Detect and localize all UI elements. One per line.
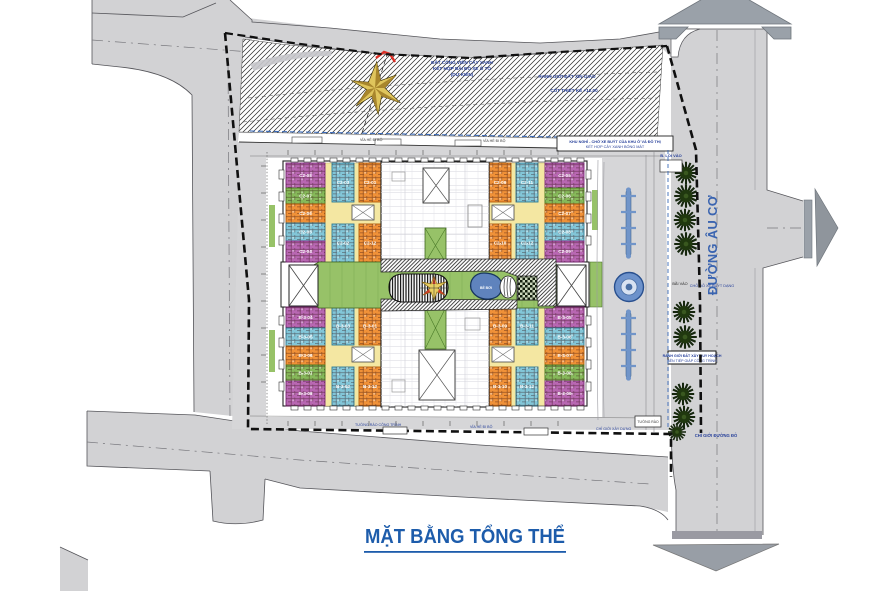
svg-text:B-3-07: B-3-07 [298,371,312,376]
svg-text:B-3-12: B-3-12 [363,384,377,389]
svg-text:VỈA HÈ ĐI BỘ: VỈA HÈ ĐI BỘ [483,138,506,143]
svg-text:C2-08: C2-08 [299,173,312,178]
svg-text:C2-07: C2-07 [558,211,571,216]
svg-text:BỂ BƠI: BỂ BƠI [480,285,492,290]
svg-text:C2-07: C2-07 [299,194,312,199]
svg-text:MẶT BẰNG TỔNG THỂ: MẶT BẰNG TỔNG THỂ [365,524,565,548]
svg-text:B-3-01: B-3-01 [363,324,377,329]
svg-text:C2-12: C2-12 [521,241,534,246]
svg-text:B-3-11: B-3-11 [520,324,534,329]
svg-text:B-3-08: B-3-08 [298,391,312,396]
svg-text:C2-05: C2-05 [558,173,571,178]
svg-text:C2-02: C2-02 [337,241,350,246]
svg-text:CHỈ GIỚI ĐƯỜNG ĐỎ: CHỈ GIỚI ĐƯỜNG ĐỎ [695,433,738,438]
svg-text:B-3-05: B-3-05 [557,315,571,320]
svg-text:KẾT HỢP CÂY XANH BÓNG MÁT: KẾT HỢP CÂY XANH BÓNG MÁT [586,144,645,149]
svg-text:B-3-02: B-3-02 [336,384,350,389]
svg-text:VỈA HÈ ĐI BỘ: VỈA HÈ ĐI BỘ [360,137,383,142]
svg-text:ĐƯỜNG ÂU CƠ: ĐƯỜNG ÂU CƠ [705,195,720,295]
svg-text:B-3-03: B-3-03 [336,324,350,329]
svg-text:B-3-06: B-3-06 [557,335,571,340]
svg-text:KHU NGHỈ - CHỜ XE BUÝT CỦA KHU: KHU NGHỈ - CHỜ XE BUÝT CỦA KHU Ở VÀ ĐÔ T… [569,139,660,144]
svg-text:C2-06: C2-06 [299,211,312,216]
svg-text:CỐT THIẾT KẾ +12.00: CỐT THIẾT KẾ +12.00 [550,87,598,93]
svg-text:B-3-04: B-3-04 [298,315,312,320]
svg-text:KẾT HỢP BÃI ĐỖ XE Ô TÔ: KẾT HỢP BÃI ĐỖ XE Ô TÔ [433,64,491,71]
svg-text:TƯỜNG RÀO CÔNG TRÌNH: TƯỜNG RÀO CÔNG TRÌNH [355,422,402,427]
svg-text:C2-12: C2-12 [364,241,377,246]
svg-text:C2-11: C2-11 [521,180,534,185]
svg-text:B-3-05: B-3-05 [298,335,312,340]
svg-text:CHỈ GIỚI XÂY DỰNG: CHỈ GIỚI XÂY DỰNG [596,426,631,431]
svg-text:RANH GIỚI ĐẤT XIN GIAO: RANH GIỚI ĐẤT XIN GIAO [538,72,596,79]
svg-text:B-3-09: B-3-09 [493,324,507,329]
svg-text:B-3-06: B-3-06 [298,353,312,358]
svg-text:B-3-09: B-3-09 [557,391,571,396]
svg-text:B-3-07: B-3-07 [557,353,571,358]
svg-text:C2-10: C2-10 [494,241,507,246]
svg-text:B. LỐI VÀO: B. LỐI VÀO [660,153,682,158]
svg-text:BÊN TIẾP GIÁP CÔNG TRÌNH: BÊN TIẾP GIÁP CÔNG TRÌNH [667,358,717,363]
svg-text:C2-05: C2-05 [299,230,312,235]
svg-text:C2-06: C2-06 [558,194,571,199]
svg-text:B-3-12: B-3-12 [520,384,534,389]
svg-text:B-3-10: B-3-10 [493,384,507,389]
svg-text:RANH GIỚI ĐẤT XÂY QUY HOẠCH: RANH GIỚI ĐẤT XÂY QUY HOẠCH [663,353,722,358]
svg-text:C2-03: C2-03 [337,180,350,185]
svg-text:BÃI VÀO: BÃI VÀO [672,281,687,286]
svg-text:VỈA HÈ ĐI BỘ: VỈA HÈ ĐI BỘ [470,424,493,429]
svg-text:C2-04: C2-04 [299,249,312,254]
svg-text:C2-01: C2-01 [364,180,377,185]
svg-text:C2-09: C2-09 [558,249,571,254]
svg-text:ĐẤT CÔNG VIÊN CÂY XANH: ĐẤT CÔNG VIÊN CÂY XANH [431,58,493,65]
svg-text:(DỰ KIẾN): (DỰ KIẾN) [451,71,474,77]
svg-text:C2-08: C2-08 [558,230,571,235]
svg-text:B-3-08: B-3-08 [557,371,571,376]
svg-text:TƯỜNG RÀO: TƯỜNG RÀO [637,419,659,424]
svg-text:C2-09: C2-09 [494,180,507,185]
